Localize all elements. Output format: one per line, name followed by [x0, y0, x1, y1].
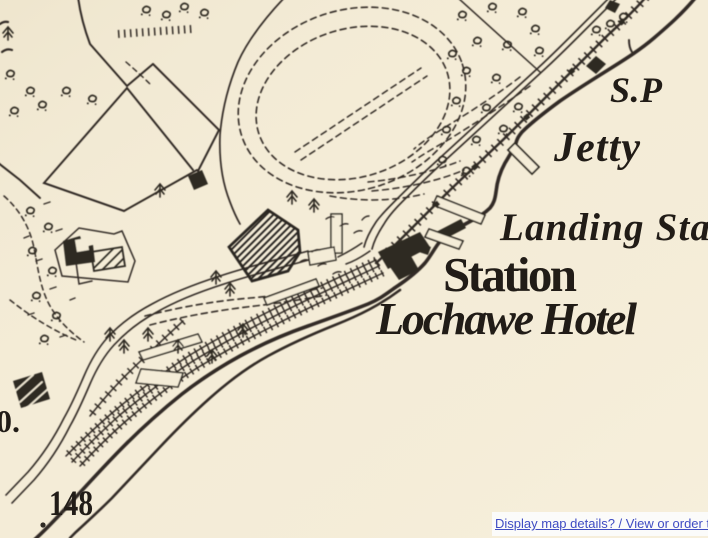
svg-text:148: 148 — [49, 483, 93, 523]
svg-text:Landing Sta: Landing Sta — [499, 206, 708, 249]
svg-text:Jetty: Jetty — [553, 125, 640, 171]
svg-text:Lochawe Hotel: Lochawe Hotel — [375, 293, 637, 344]
svg-text:S.P: S.P — [610, 70, 663, 110]
svg-text:0.: 0. — [0, 403, 20, 439]
